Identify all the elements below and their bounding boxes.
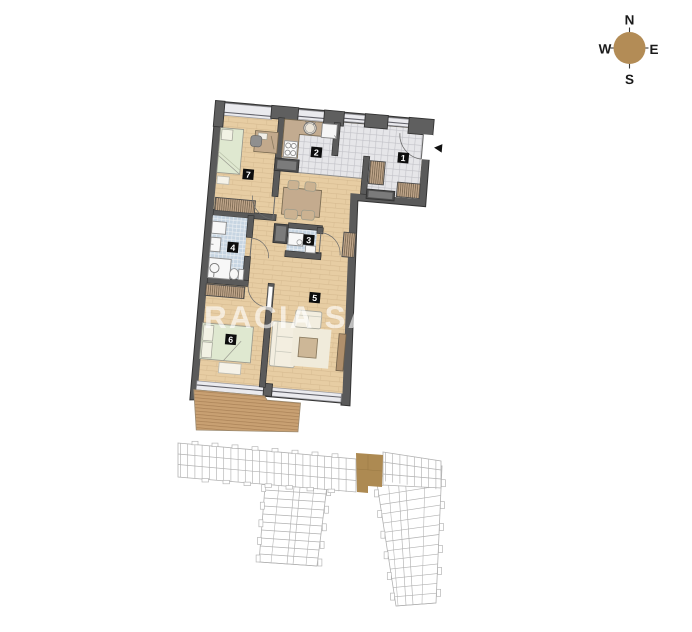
svg-text:4: 4 [230, 242, 236, 252]
svg-text:S: S [625, 72, 634, 87]
svg-text:1: 1 [400, 153, 406, 163]
svg-text:7: 7 [245, 169, 251, 179]
svg-text:E: E [649, 42, 658, 57]
svg-text:3: 3 [306, 235, 312, 245]
svg-text:N: N [625, 13, 635, 28]
svg-text:W: W [599, 42, 612, 57]
svg-text:RACIA SA: RACIA SA [204, 299, 373, 335]
svg-text:2: 2 [314, 147, 320, 157]
svg-text:6: 6 [228, 335, 234, 345]
